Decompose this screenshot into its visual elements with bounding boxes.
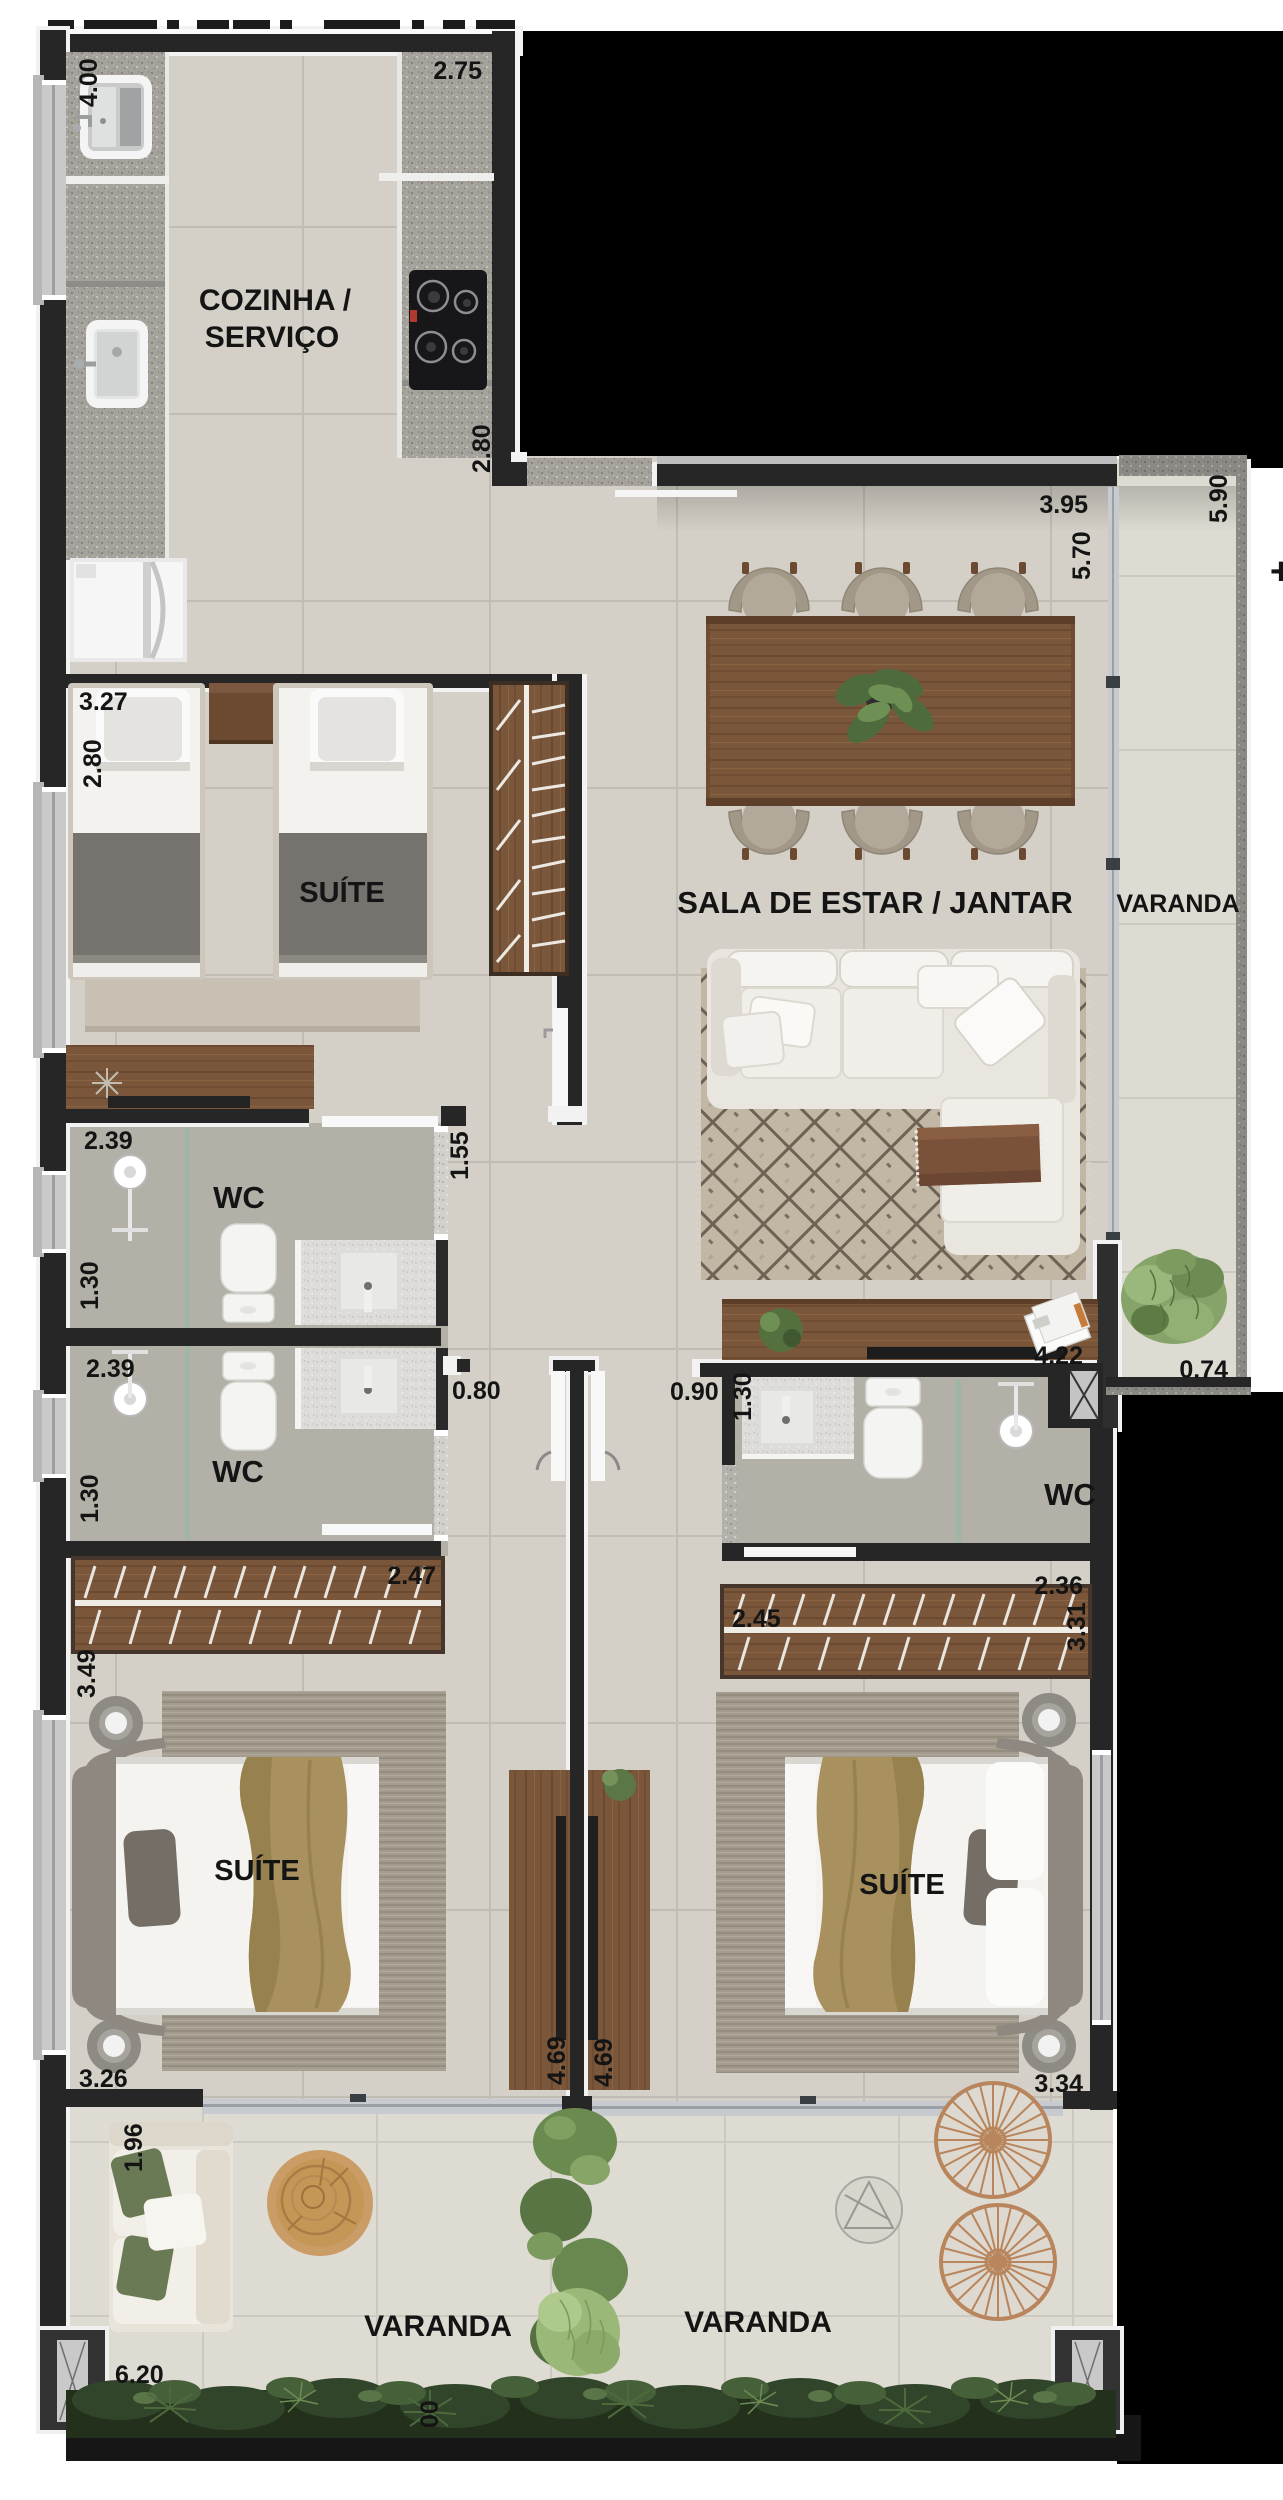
svg-text:SUÍTE: SUÍTE	[299, 875, 384, 909]
svg-text:SUÍTE: SUÍTE	[214, 1853, 299, 1887]
svg-text:2.45: 2.45	[732, 1605, 781, 1633]
svg-text:+: +	[1270, 551, 1283, 593]
svg-text:3.26: 3.26	[79, 2065, 128, 2093]
svg-text:4.69: 4.69	[590, 2038, 618, 2087]
svg-text:0.90: 0.90	[670, 1378, 719, 1406]
svg-text:2.36: 2.36	[1034, 1572, 1083, 1600]
svg-text:5.70: 5.70	[1068, 531, 1096, 580]
svg-text:3.95: 3.95	[1039, 491, 1088, 519]
svg-text:VARANDA: VARANDA	[684, 2306, 832, 2339]
svg-text:COZINHA /: COZINHA /	[199, 284, 352, 317]
svg-text:2.75: 2.75	[433, 57, 482, 85]
svg-text:2.80: 2.80	[79, 739, 107, 788]
svg-text:2.47: 2.47	[387, 1562, 436, 1590]
svg-text:3.49: 3.49	[73, 1649, 101, 1698]
svg-text:5.90: 5.90	[1205, 474, 1233, 523]
svg-text:2.39: 2.39	[84, 1127, 133, 1155]
svg-text:VARANDA: VARANDA	[1116, 890, 1239, 918]
svg-text:3.31: 3.31	[1063, 1602, 1091, 1651]
svg-text:0.80: 0.80	[452, 1377, 501, 1405]
svg-text:1.30: 1.30	[76, 1474, 104, 1523]
svg-text:4.00: 4.00	[75, 58, 103, 107]
svg-text:2.80: 2.80	[468, 424, 496, 473]
svg-text:00: 00	[416, 2400, 444, 2428]
svg-text:4.22: 4.22	[1034, 1342, 1083, 1370]
svg-text:1.30: 1.30	[76, 1261, 104, 1310]
svg-text:1.30: 1.30	[729, 1372, 757, 1421]
svg-text:3.27: 3.27	[79, 688, 128, 716]
svg-text:0.74: 0.74	[1179, 1356, 1228, 1384]
svg-text:4.69: 4.69	[543, 2036, 571, 2085]
svg-text:WC: WC	[213, 1180, 265, 1215]
svg-text:1.96: 1.96	[120, 2123, 148, 2172]
svg-text:VARANDA: VARANDA	[364, 2310, 512, 2343]
svg-text:WC: WC	[1044, 1477, 1096, 1512]
svg-text:6.20: 6.20	[115, 2361, 164, 2389]
svg-text:1.55: 1.55	[446, 1131, 474, 1180]
svg-text:3.34: 3.34	[1034, 2070, 1083, 2098]
svg-text:SUÍTE: SUÍTE	[859, 1867, 944, 1901]
svg-text:SERVIÇO: SERVIÇO	[205, 321, 340, 354]
svg-text:WC: WC	[212, 1454, 264, 1489]
svg-text:2.39: 2.39	[86, 1355, 135, 1383]
svg-text:SALA DE ESTAR / JANTAR: SALA DE ESTAR / JANTAR	[677, 885, 1073, 920]
